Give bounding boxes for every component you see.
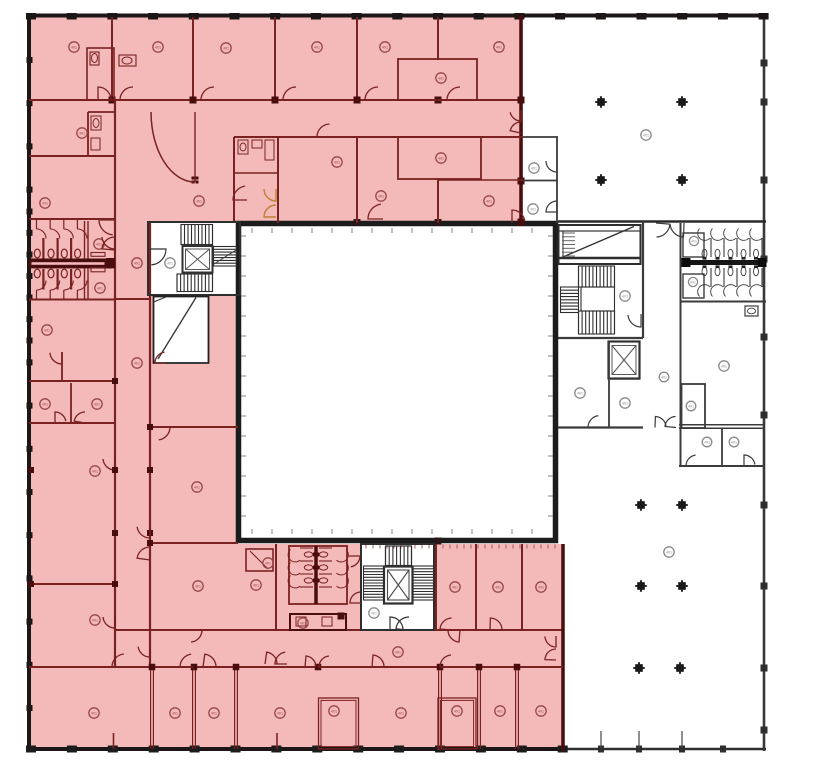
svg-text:401: 401 <box>452 585 458 589</box>
svg-text:401: 401 <box>314 45 320 49</box>
svg-text:401: 401 <box>331 709 337 713</box>
svg-text:401: 401 <box>97 286 103 290</box>
svg-text:401: 401 <box>71 45 77 49</box>
svg-text:401: 401 <box>495 585 501 589</box>
svg-text:401: 401 <box>704 440 710 444</box>
svg-text:401: 401 <box>91 711 97 715</box>
svg-text:401: 401 <box>277 711 283 715</box>
svg-text:401: 401 <box>155 45 161 49</box>
svg-text:401: 401 <box>661 375 667 379</box>
svg-text:401: 401 <box>44 328 50 332</box>
svg-text:401: 401 <box>253 583 259 587</box>
svg-text:401: 401 <box>134 261 140 265</box>
svg-text:401: 401 <box>731 440 737 444</box>
svg-text:401: 401 <box>378 194 384 198</box>
svg-text:401: 401 <box>195 584 201 588</box>
svg-text:401: 401 <box>300 621 306 625</box>
svg-text:401: 401 <box>172 711 178 715</box>
svg-text:401: 401 <box>530 207 536 211</box>
svg-text:401: 401 <box>42 201 48 205</box>
svg-text:401: 401 <box>690 280 696 284</box>
svg-text:401: 401 <box>622 294 628 298</box>
svg-text:401: 401 <box>438 76 444 80</box>
svg-text:401: 401 <box>134 361 140 365</box>
svg-text:401: 401 <box>94 402 100 406</box>
svg-text:401: 401 <box>265 561 271 565</box>
svg-text:401: 401 <box>691 239 697 243</box>
svg-text:401: 401 <box>223 46 229 50</box>
svg-text:401: 401 <box>395 650 401 654</box>
svg-text:401: 401 <box>721 364 727 368</box>
svg-text:401: 401 <box>538 709 544 713</box>
svg-text:401: 401 <box>92 469 98 473</box>
svg-text:401: 401 <box>454 709 460 713</box>
svg-text:401: 401 <box>496 45 502 49</box>
svg-text:401: 401 <box>92 618 98 622</box>
svg-text:401: 401 <box>42 402 48 406</box>
svg-text:401: 401 <box>167 261 173 265</box>
svg-text:401: 401 <box>334 160 340 164</box>
svg-text:401: 401 <box>577 391 583 395</box>
svg-text:401: 401 <box>194 485 200 489</box>
svg-text:401: 401 <box>79 131 85 135</box>
svg-text:401: 401 <box>196 199 202 203</box>
svg-text:401: 401 <box>497 709 503 713</box>
svg-text:401: 401 <box>398 711 404 715</box>
svg-text:401: 401 <box>688 404 694 408</box>
svg-text:401: 401 <box>382 45 388 49</box>
svg-text:401: 401 <box>211 711 217 715</box>
svg-text:401: 401 <box>531 166 537 170</box>
svg-text:401: 401 <box>666 550 672 554</box>
svg-text:401: 401 <box>643 133 649 137</box>
svg-text:401: 401 <box>538 585 544 589</box>
svg-text:401: 401 <box>622 401 628 405</box>
svg-text:401: 401 <box>371 611 377 615</box>
svg-text:401: 401 <box>96 242 102 246</box>
svg-text:401: 401 <box>438 156 444 160</box>
svg-text:401: 401 <box>486 199 492 203</box>
